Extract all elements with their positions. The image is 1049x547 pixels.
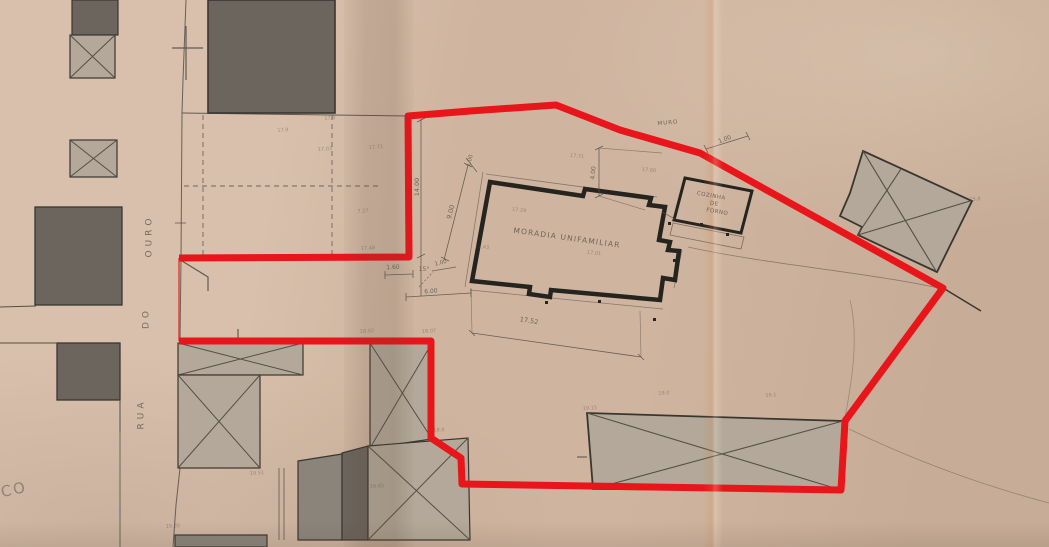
upper-parcel-lines [182, 113, 407, 258]
building-footprint-x [840, 151, 972, 272]
building-footprint [298, 454, 342, 540]
plan-linework [0, 0, 1049, 547]
building-footprint [35, 207, 122, 305]
outbuilding-wall [674, 178, 752, 233]
building-footprint [342, 446, 368, 540]
building-footprint [72, 0, 118, 35]
neighbor-building-bottom [577, 413, 843, 490]
building-footprint [57, 343, 120, 400]
neighbor-buildings-bottom-left [178, 343, 470, 540]
main-building [465, 172, 682, 309]
site-plan-scan: OURODORUAMORADIA UNIFAMILIARCOZINHADEFOR… [0, 0, 1049, 547]
building-footprint [175, 535, 267, 547]
building-footprint-top [208, 0, 335, 113]
outbuilding [662, 178, 752, 249]
neighbor-building-right [840, 151, 981, 311]
main-building-wall [472, 182, 679, 300]
